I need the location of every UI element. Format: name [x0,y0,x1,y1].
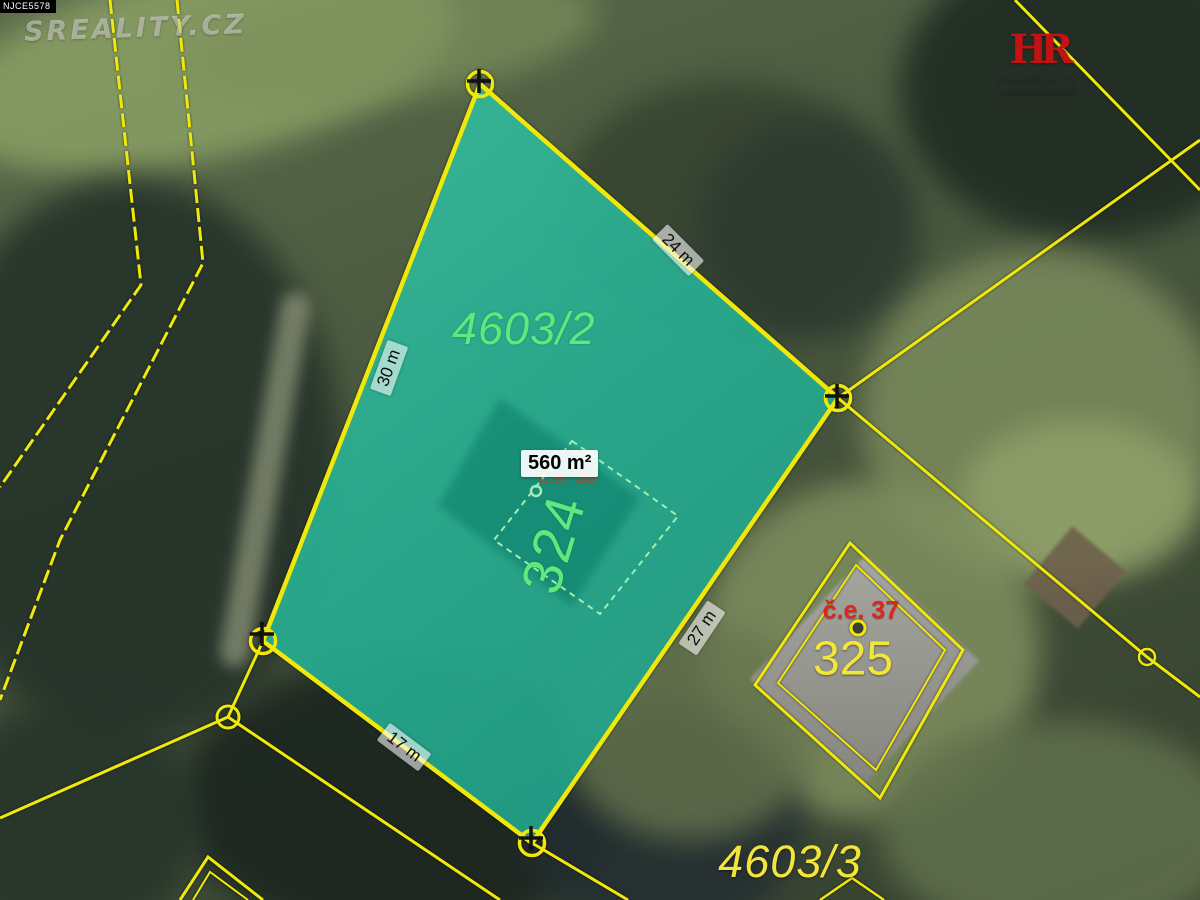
parcel-number-4603-3: 4603/3 [718,836,862,888]
photo-id-badge: NJCE5578 [0,0,56,13]
boundary-line-corridor-right [0,0,203,700]
agency-logo: HR HaviReality [968,30,1108,96]
vertex-marker-top [467,69,493,97]
agency-logo-name: HaviReality [968,72,1108,88]
agency-logo-monogram: HR [968,30,1108,70]
boundary-line-corridor-left [0,0,141,487]
area-label: 560 m² [521,450,598,477]
boundary-line-bottom [532,843,628,900]
house-number-325: 325 [813,632,893,687]
map-linework [0,0,1200,900]
structure-bottom-left-inner [193,872,248,900]
agency-logo-tagline [1001,91,1075,96]
boundary-line-upper-right [838,140,1200,398]
parcel-number-4603-2: 4603/2 [452,303,596,355]
cadastral-map-image: 4603/2 560 m² č.e. 36 324 325 č.e. 37 46… [0,0,1200,900]
vertex-marker-right [825,384,851,411]
house-ref-37: č.e. 37 [823,597,899,626]
structure-bottom-left-outer [180,857,263,900]
